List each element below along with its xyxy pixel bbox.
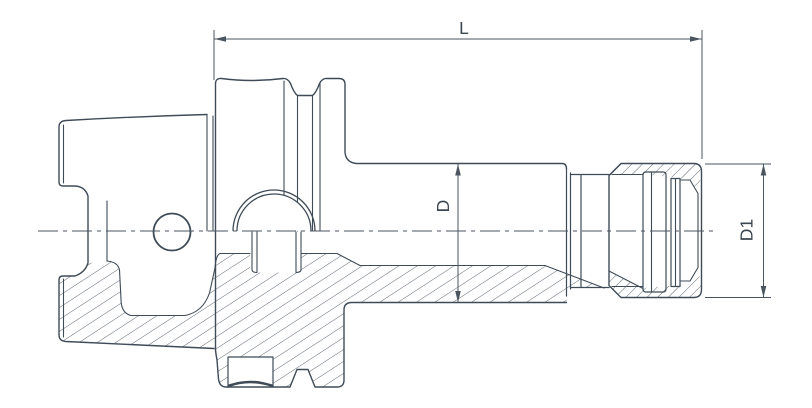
- nut-bottom-section-hatch: [609, 268, 702, 298]
- collet-chuck-section-drawing: L D D1: [0, 0, 812, 408]
- cross-hole-walls: [252, 232, 301, 273]
- technical-drawing-page: L D D1: [0, 0, 812, 408]
- collet-ring-outer: [643, 172, 666, 292]
- side-lock-hole: [154, 214, 191, 251]
- label-length-L: L: [459, 18, 469, 38]
- dim-L-arrow-right: [690, 36, 702, 42]
- dimension-L: [214, 30, 702, 159]
- screw-pocket-bottom-arc: [230, 382, 272, 386]
- body-section-hatch: [59, 254, 603, 388]
- shank-flange-junction-lines: [207, 115, 213, 232]
- coolant-dome: [233, 190, 315, 231]
- dim-D-arrow-top: [455, 164, 461, 176]
- dim-D1-arrow-top: [761, 164, 767, 176]
- shank-outline-upper: [59, 115, 207, 232]
- dim-D1-arrow-bottom: [761, 286, 767, 298]
- dim-L-arrow-left: [215, 36, 227, 42]
- label-diameter-D1: D1: [737, 219, 757, 241]
- section-hatching: [59, 164, 702, 388]
- label-diameter-D: D: [433, 200, 453, 213]
- dimension-labels: L D D1: [433, 18, 757, 241]
- nut-top-section-hatch: [609, 164, 702, 193]
